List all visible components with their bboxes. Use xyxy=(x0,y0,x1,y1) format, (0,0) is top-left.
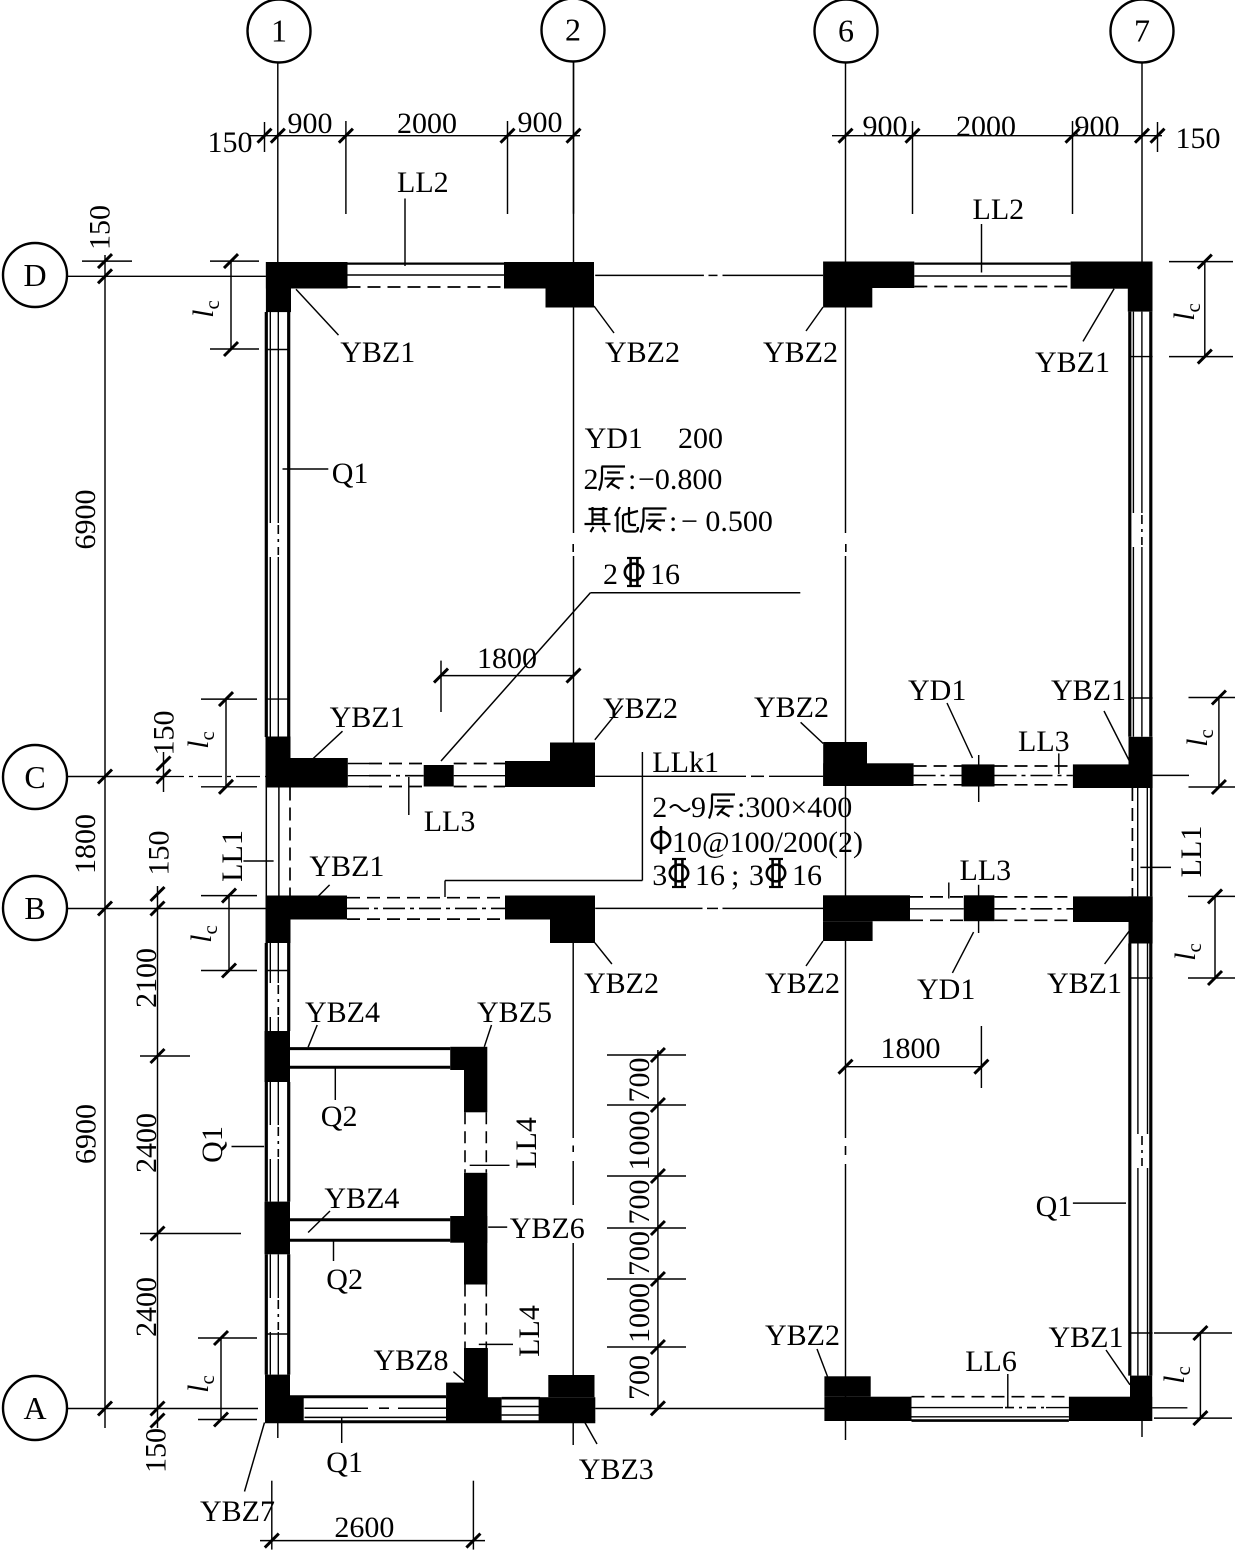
svg-text:A: A xyxy=(23,1390,46,1426)
svg-text:150: 150 xyxy=(143,831,176,876)
svg-text:YBZ4: YBZ4 xyxy=(324,1182,399,1215)
svg-text:2: 2 xyxy=(565,12,581,48)
svg-text:2000: 2000 xyxy=(397,107,457,140)
svg-text:LLk1: LLk1 xyxy=(652,746,719,779)
svg-text:B: B xyxy=(24,890,45,926)
svg-text:700: 700 xyxy=(623,1231,656,1276)
svg-text:2: 2 xyxy=(603,558,618,591)
svg-text:YBZ1: YBZ1 xyxy=(1035,346,1110,379)
svg-text:YBZ8: YBZ8 xyxy=(374,1344,449,1377)
svg-text:Q1: Q1 xyxy=(326,1446,363,1479)
svg-text:YBZ1: YBZ1 xyxy=(1049,1321,1124,1354)
svg-text:2100: 2100 xyxy=(130,948,163,1008)
svg-text:YBZ2: YBZ2 xyxy=(765,967,840,1000)
svg-text:150: 150 xyxy=(84,205,117,250)
svg-text:200: 200 xyxy=(678,422,723,455)
svg-text:Q1: Q1 xyxy=(332,457,369,490)
svg-text:YBZ2: YBZ2 xyxy=(605,336,680,369)
svg-text:150: 150 xyxy=(148,711,181,756)
svg-text:YD1: YD1 xyxy=(585,422,643,455)
svg-text:1800: 1800 xyxy=(477,642,537,675)
svg-text:1800: 1800 xyxy=(881,1032,941,1065)
svg-text:1000: 1000 xyxy=(623,1283,656,1343)
svg-text:Q2: Q2 xyxy=(326,1263,363,1296)
svg-text:6: 6 xyxy=(838,13,854,49)
svg-text:YBZ7: YBZ7 xyxy=(200,1495,275,1528)
svg-text:YBZ1: YBZ1 xyxy=(330,701,405,734)
svg-text:900: 900 xyxy=(1075,110,1120,143)
svg-text:Q1: Q1 xyxy=(196,1126,229,1163)
svg-text:3: 3 xyxy=(749,859,764,892)
svg-text:3: 3 xyxy=(652,859,667,892)
svg-text:2000: 2000 xyxy=(956,110,1016,143)
svg-text:YBZ2: YBZ2 xyxy=(603,692,678,725)
svg-text:YBZ2: YBZ2 xyxy=(584,967,659,1000)
svg-text:150: 150 xyxy=(140,1428,173,1473)
svg-text:1: 1 xyxy=(271,13,287,49)
svg-text:2400: 2400 xyxy=(130,1277,163,1337)
svg-text:150: 150 xyxy=(1176,122,1221,155)
svg-text:YBZ3: YBZ3 xyxy=(579,1453,654,1486)
svg-text:900: 900 xyxy=(518,106,563,139)
svg-text:700: 700 xyxy=(623,1058,656,1103)
svg-text:D: D xyxy=(23,257,46,293)
svg-text:LL4: LL4 xyxy=(510,1117,543,1169)
svg-text:2400: 2400 xyxy=(130,1113,163,1173)
svg-text:LL6: LL6 xyxy=(965,1345,1017,1378)
svg-text:YBZ2: YBZ2 xyxy=(754,691,829,724)
svg-text::: : xyxy=(628,463,636,496)
svg-text:150: 150 xyxy=(208,126,253,159)
svg-text:LL2: LL2 xyxy=(397,166,449,199)
svg-text:LL1: LL1 xyxy=(216,830,249,882)
svg-text:;: ; xyxy=(731,859,739,892)
svg-text:16: 16 xyxy=(695,859,725,892)
svg-text:700: 700 xyxy=(623,1355,656,1400)
svg-text:YBZ5: YBZ5 xyxy=(477,996,552,1029)
svg-text:Q2: Q2 xyxy=(321,1100,358,1133)
svg-text:2600: 2600 xyxy=(334,1511,394,1544)
svg-text:YD1: YD1 xyxy=(917,973,975,1006)
svg-text:YBZ1: YBZ1 xyxy=(309,850,384,883)
svg-text:900: 900 xyxy=(863,110,908,143)
svg-text:− 0.500: − 0.500 xyxy=(681,505,773,538)
svg-text:LL4: LL4 xyxy=(513,1305,546,1357)
svg-text:Q1: Q1 xyxy=(1036,1190,1073,1223)
svg-text:6900: 6900 xyxy=(69,490,102,550)
svg-text:YBZ4: YBZ4 xyxy=(305,996,380,1029)
svg-text:LL3: LL3 xyxy=(960,854,1012,887)
svg-text::300×400: :300×400 xyxy=(737,791,852,824)
svg-text:YBZ1: YBZ1 xyxy=(1051,674,1126,707)
svg-text:YD1: YD1 xyxy=(908,674,966,707)
svg-text:C: C xyxy=(24,759,45,795)
svg-text:9: 9 xyxy=(691,791,706,824)
svg-text:1800: 1800 xyxy=(69,814,102,874)
svg-text:YBZ2: YBZ2 xyxy=(763,336,838,369)
svg-text:LL1: LL1 xyxy=(1175,826,1208,878)
svg-text:2: 2 xyxy=(584,463,599,496)
svg-text:16: 16 xyxy=(792,859,822,892)
svg-text:YBZ1: YBZ1 xyxy=(1047,967,1122,1000)
svg-text:YBZ2: YBZ2 xyxy=(765,1319,840,1352)
svg-text:YBZ6: YBZ6 xyxy=(510,1212,585,1245)
svg-text:LL3: LL3 xyxy=(424,805,476,838)
svg-text:6900: 6900 xyxy=(70,1104,103,1164)
svg-text:900: 900 xyxy=(288,107,333,140)
svg-text::: : xyxy=(669,505,677,538)
svg-text:−0.800: −0.800 xyxy=(638,463,722,496)
svg-text:7: 7 xyxy=(1134,13,1150,49)
svg-text:LL3: LL3 xyxy=(1018,725,1070,758)
svg-text:2: 2 xyxy=(652,791,667,824)
svg-text:700: 700 xyxy=(623,1180,656,1225)
svg-text:YBZ1: YBZ1 xyxy=(340,336,415,369)
svg-text:LL2: LL2 xyxy=(973,193,1025,226)
svg-text:10@100/200(2): 10@100/200(2) xyxy=(672,826,863,859)
svg-text:1000: 1000 xyxy=(623,1111,656,1171)
svg-text:16: 16 xyxy=(650,558,680,591)
